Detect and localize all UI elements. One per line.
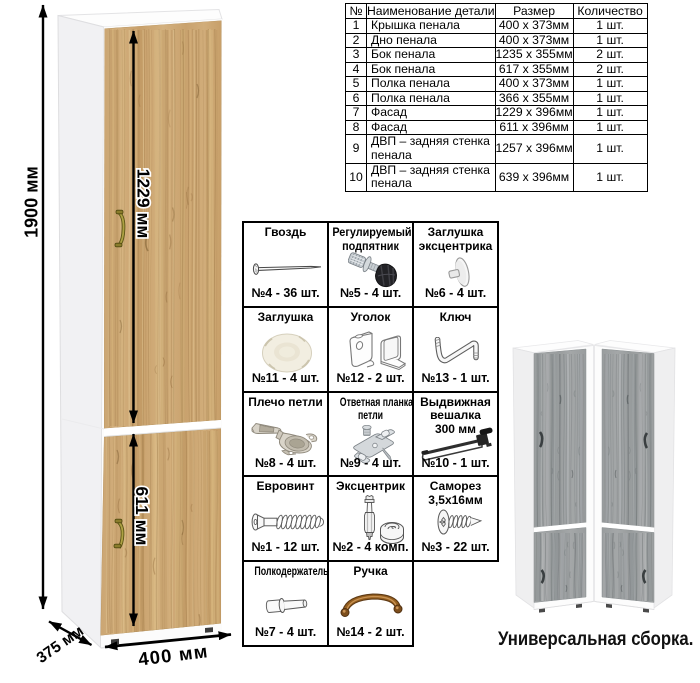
svg-text:1900 мм: 1900 мм [21,166,41,238]
svg-text:375 мм: 375 мм [34,622,87,666]
svg-text:400 мм: 400 мм [137,640,210,669]
svg-text:611 мм: 611 мм [132,487,152,546]
svg-text:1229 мм: 1229 мм [133,169,153,239]
